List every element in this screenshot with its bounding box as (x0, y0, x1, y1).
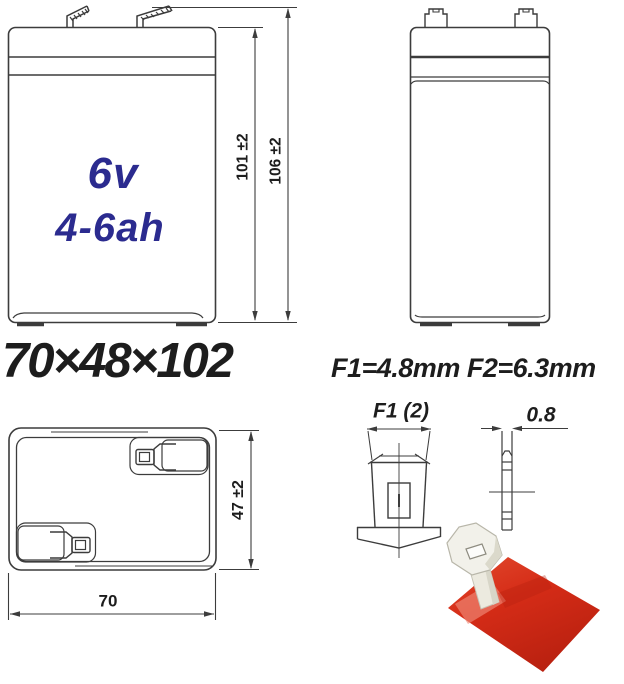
side-view-drawing (411, 9, 550, 325)
top-view-dimension-lines (9, 431, 260, 621)
side-terminal-left-icon (425, 9, 447, 27)
top-view-drawing (9, 428, 216, 570)
battery-spec-diagram: 6v 4-6ah 101 ±2 106 ±2 70×48×102 F1=4.8m… (0, 0, 624, 684)
width-dimension: 70 (99, 593, 118, 610)
terminal-width-dimension-label: F1 (2) (373, 401, 429, 422)
front-terminal-left-icon (67, 6, 89, 27)
terminal-f1-detail-drawing (357, 426, 441, 558)
terminal-thickness-dimension: 0.8 (526, 405, 555, 426)
top-terminal-left-icon (50, 532, 90, 558)
battery-voltage-label: 6v (88, 152, 139, 196)
terminal-thickness-detail-drawing (481, 426, 568, 530)
terminal-spec-label: F1=4.8mm F2=6.3mm (331, 355, 596, 382)
battery-capacity-label: 4-6ah (55, 208, 165, 248)
top-terminal-right-icon (136, 444, 176, 470)
side-terminal-right-icon (515, 9, 537, 27)
overall-height-dimension: 106 ±2 (268, 137, 284, 184)
depth-dimension: 47 ±2 (231, 480, 247, 520)
dimension-arrowheads (10, 431, 254, 617)
overall-size-label: 70×48×102 (2, 337, 232, 386)
front-terminal-right-icon (137, 6, 172, 27)
case-height-dimension: 101 ±2 (235, 133, 251, 180)
terminal-connector-photo (447, 523, 600, 672)
